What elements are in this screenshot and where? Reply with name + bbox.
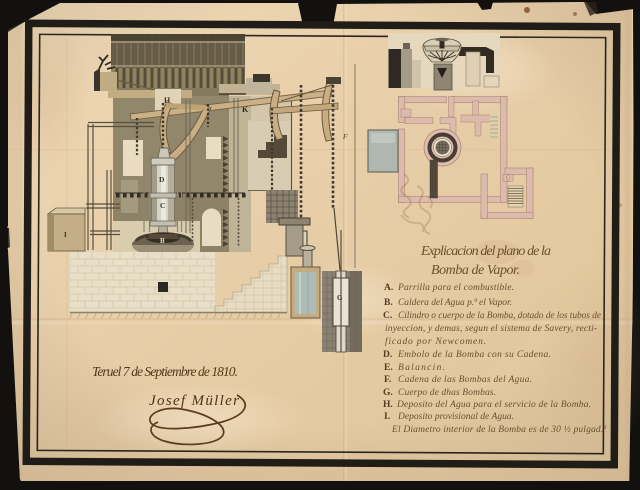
svg-text:I.: I.	[384, 412, 390, 422]
svg-text:Balancin.: Balancin.	[398, 363, 445, 373]
svg-text:Parrilla para el combustible.: Parrilla para el combustible.	[397, 283, 514, 293]
svg-text:El Diametro interior de la Bom: El Diametro interior de la Bomba es de 3…	[391, 424, 606, 435]
svg-text:A.: A.	[384, 283, 393, 293]
svg-text:C: C	[160, 201, 165, 210]
svg-text:Cadena de las Bombas del Agua.: Cadena de las Bombas del Agua.	[398, 375, 532, 385]
svg-text:Explicacion del plano de la: Explicacion del plano de la	[420, 244, 551, 259]
svg-text:I: I	[64, 231, 67, 239]
svg-text:Caldera del Agua p.ª el Vapor.: Caldera del Agua p.ª el Vapor.	[398, 298, 512, 308]
svg-text:B.: B.	[384, 298, 393, 308]
svg-text:Cuerpo de dhas Bombas.: Cuerpo de dhas Bombas.	[398, 388, 496, 398]
svg-text:Teruel 7 de Septiembre de 1810: Teruel 7 de Septiembre de 1810.	[92, 364, 238, 379]
svg-text:Embolo de la Bomba con su Cade: Embolo de la Bomba con su Cadena.	[397, 350, 551, 360]
svg-text:F.: F.	[384, 375, 391, 385]
svg-text:C.: C.	[383, 311, 392, 321]
svg-text:D.: D.	[383, 350, 392, 360]
svg-text:H.: H.	[383, 400, 393, 410]
svg-text:Bomba de Vapor.: Bomba de Vapor.	[431, 263, 520, 278]
svg-text:ficado por Newcomen.: ficado por Newcomen.	[385, 336, 486, 347]
svg-text:Cilindro o cuerpo de la Bomba,: Cilindro o cuerpo de la Bomba, dotado de…	[398, 311, 601, 321]
svg-text:Josef Müller: Josef Müller	[149, 393, 239, 409]
svg-text:F: F	[342, 133, 348, 141]
svg-text:Deposito del Agua para el serv: Deposito del Agua para el servicio de la…	[396, 400, 591, 410]
svg-text:inyeccion, y demas, segun el s: inyeccion, y demas, segun el sistema de …	[385, 324, 597, 334]
svg-text:G.: G.	[383, 388, 393, 398]
svg-text:B: B	[160, 237, 165, 245]
svg-text:G: G	[337, 294, 343, 302]
svg-text:Deposito provisional de Agua.: Deposito provisional de Agua.	[397, 412, 514, 422]
svg-text:E.: E.	[384, 363, 393, 373]
svg-text:D: D	[159, 175, 165, 184]
